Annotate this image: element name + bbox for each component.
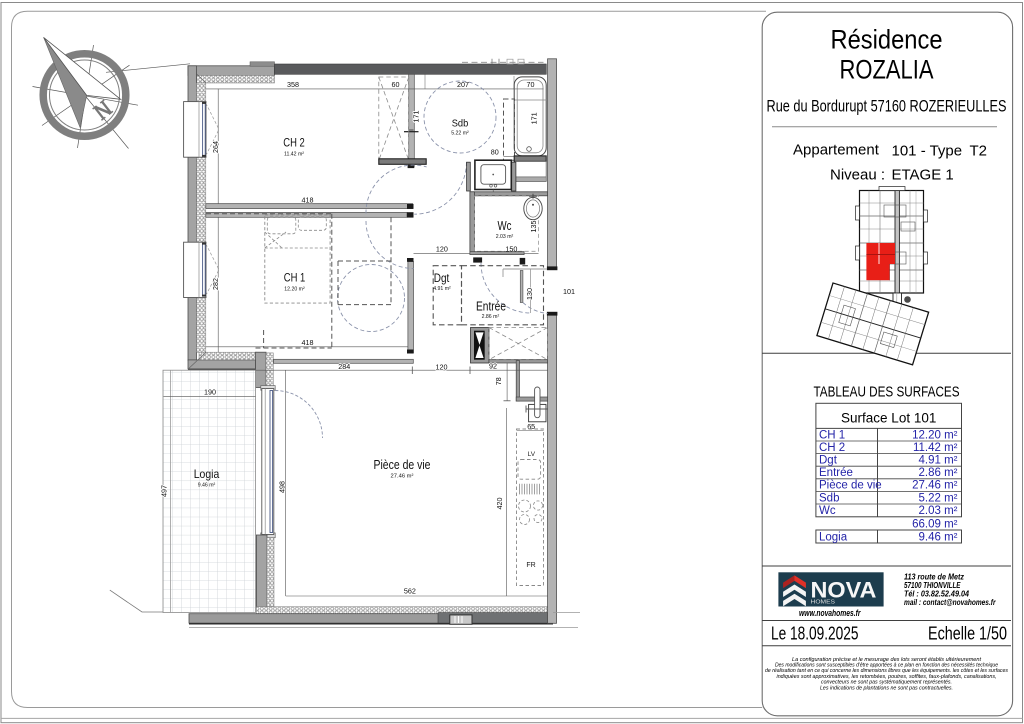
svg-text:11.42 m²: 11.42 m²: [913, 442, 958, 454]
svg-text:2.86 m²: 2.86 m²: [482, 314, 500, 320]
svg-text:171: 171: [530, 112, 539, 124]
svg-text:11.42 m²: 11.42 m²: [284, 152, 304, 158]
svg-text:Le 18.09.2025: Le 18.09.2025: [771, 623, 859, 643]
svg-text:ETAGE 1: ETAGE 1: [892, 166, 954, 183]
svg-text:www.novahomes.fr: www.novahomes.fr: [799, 608, 861, 618]
svg-text:Les indications de plantations: Les indications de plantations ne sont p…: [820, 685, 953, 691]
svg-text:120: 120: [436, 363, 448, 372]
svg-text:LV: LV: [528, 451, 536, 458]
svg-text:Sdb: Sdb: [452, 118, 469, 130]
svg-text:Logia: Logia: [819, 531, 848, 543]
svg-text:Résidence: Résidence: [831, 25, 943, 55]
svg-text:ROZALIA: ROZALIA: [840, 55, 934, 85]
svg-text:Pièce de vie: Pièce de vie: [819, 480, 882, 492]
svg-text:Wc: Wc: [498, 219, 512, 233]
svg-text:9.46 m²: 9.46 m²: [919, 531, 958, 543]
svg-text:264: 264: [211, 141, 220, 153]
svg-text:282: 282: [211, 278, 220, 290]
svg-text:171: 171: [412, 111, 421, 123]
svg-text:418: 418: [302, 338, 314, 347]
svg-text:498: 498: [278, 481, 287, 493]
svg-text:80: 80: [491, 147, 499, 156]
svg-text:66.09 m²: 66.09 m²: [912, 519, 958, 531]
svg-text:Entrée: Entrée: [819, 467, 853, 479]
svg-text:Dgt: Dgt: [819, 455, 838, 467]
svg-text:Pièce de vie: Pièce de vie: [374, 458, 431, 472]
svg-text:420: 420: [495, 498, 504, 510]
svg-text:130: 130: [525, 288, 534, 300]
svg-text:CH 1: CH 1: [284, 271, 306, 285]
svg-text:CH 2: CH 2: [819, 442, 845, 454]
svg-text:Dgt: Dgt: [434, 273, 450, 285]
svg-text:92: 92: [489, 362, 497, 371]
svg-text:358: 358: [287, 80, 299, 89]
svg-text:4.91 m²: 4.91 m²: [919, 455, 958, 467]
svg-text:Wc: Wc: [819, 505, 836, 517]
svg-text:CH 2: CH 2: [283, 136, 305, 150]
svg-text:5.22 m²: 5.22 m²: [451, 131, 469, 137]
svg-text:Entrée: Entrée: [476, 299, 506, 313]
svg-text:78: 78: [494, 377, 503, 385]
svg-text:Appartement: Appartement: [793, 142, 880, 159]
svg-text:60: 60: [392, 80, 400, 89]
svg-text:190: 190: [204, 388, 216, 397]
svg-text:Sdb: Sdb: [819, 492, 839, 504]
svg-text:27.46 m²: 27.46 m²: [391, 473, 414, 479]
svg-text:Niveau :: Niveau :: [830, 166, 885, 183]
svg-text:101 - Type: 101 - Type: [892, 143, 963, 160]
svg-text:5.22 m²: 5.22 m²: [919, 492, 958, 504]
svg-text:9.46 m²: 9.46 m²: [198, 483, 216, 489]
svg-text:497: 497: [160, 485, 169, 497]
svg-text:27.46 m²: 27.46 m²: [912, 480, 958, 492]
svg-text:Logia: Logia: [194, 467, 220, 481]
svg-text:12.20 m²: 12.20 m²: [284, 287, 305, 293]
svg-text:2.86 m²: 2.86 m²: [919, 467, 958, 479]
svg-text:CH 1: CH 1: [819, 429, 845, 441]
svg-text:HOMES: HOMES: [811, 600, 836, 606]
svg-text:4.91 m²: 4.91 m²: [433, 286, 451, 292]
svg-text:TABLEAU DES SURFACES: TABLEAU DES SURFACES: [814, 384, 960, 401]
svg-text:2.03 m²: 2.03 m²: [496, 234, 514, 240]
svg-text:101: 101: [563, 287, 575, 296]
svg-text:135: 135: [529, 221, 538, 233]
svg-text:70: 70: [527, 80, 535, 89]
svg-text:120: 120: [436, 244, 448, 253]
svg-text:12.20 m²: 12.20 m²: [912, 429, 958, 441]
svg-text:Rue du Bordurupt 57160 ROZERIE: Rue du Bordurupt 57160 ROZERIEULLES: [767, 98, 1007, 116]
svg-text:418: 418: [302, 195, 314, 204]
svg-text:FR: FR: [526, 562, 535, 569]
svg-text:T2: T2: [970, 143, 988, 160]
svg-text:mail : contact@novahomes.fr: mail : contact@novahomes.fr: [904, 598, 996, 607]
svg-text:2.03 m²: 2.03 m²: [919, 505, 958, 517]
svg-text:Echelle 1/50: Echelle 1/50: [928, 623, 1007, 643]
svg-text:Surface Lot 101: Surface Lot 101: [841, 410, 936, 425]
svg-text:562: 562: [404, 587, 416, 596]
svg-text:284: 284: [338, 362, 350, 371]
